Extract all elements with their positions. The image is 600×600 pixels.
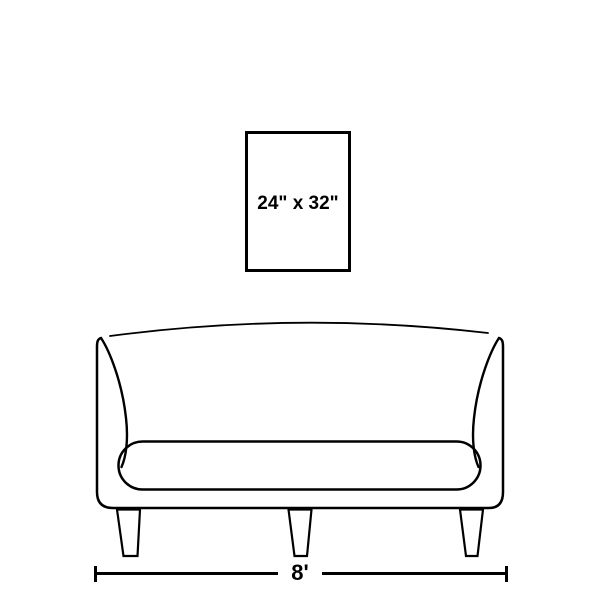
- sofa-right-leg: [460, 510, 483, 557]
- dimension-left-segment: [95, 572, 278, 575]
- size-guide-diagram: 24" x 32" 8': [0, 0, 600, 600]
- sofa-back-arc: [110, 323, 488, 336]
- sofa-left-leg: [117, 510, 140, 557]
- sofa-center-leg: [289, 510, 312, 557]
- sofa-illustration: [0, 0, 600, 600]
- dimension-right-tick: [505, 566, 508, 582]
- sofa-width-label: 8': [278, 561, 322, 585]
- sofa-line-group: [97, 323, 503, 556]
- sofa-seat-cushion: [119, 442, 481, 490]
- dimension-right-segment: [322, 572, 507, 575]
